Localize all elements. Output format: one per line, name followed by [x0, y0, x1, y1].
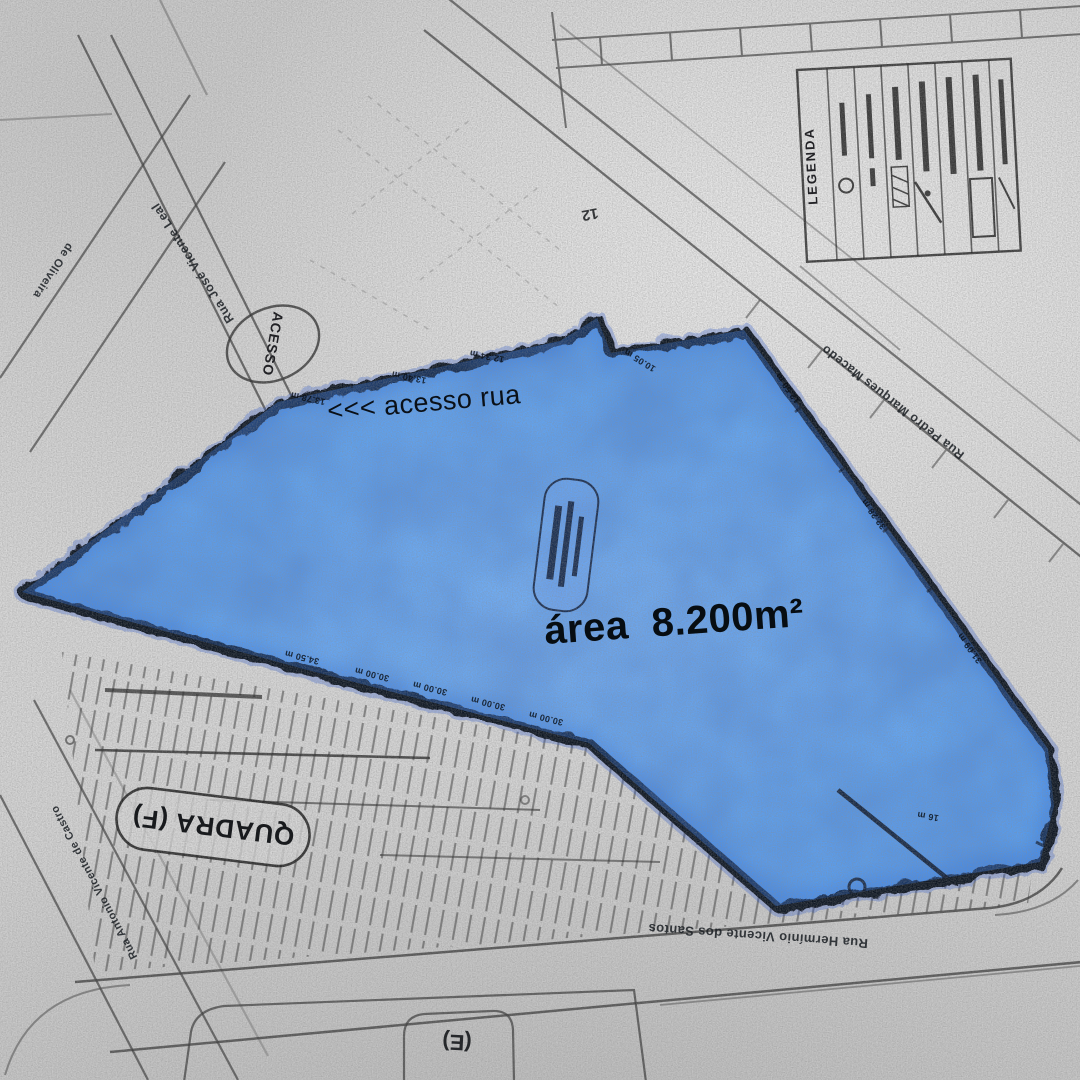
lot-number-label: 12 — [580, 205, 599, 223]
street-herminio-label: Rua Hermínio Vicente dos Santos — [648, 922, 869, 950]
measurement-label: 31.09 m — [956, 631, 984, 665]
measurement-label: 12.34 m — [469, 348, 505, 364]
area-label: área 8.200m² — [543, 593, 805, 651]
measurement-label: 12.50 m — [774, 371, 802, 405]
acesso-stamp-label: ACESSO — [260, 311, 285, 378]
measurement-label: 32.28 m — [860, 497, 888, 531]
quadra-e-label: (E) — [442, 1030, 472, 1054]
measurement-label: 30.00 m — [528, 709, 564, 726]
measurement-label: 10.05 m — [623, 347, 658, 373]
quadra-f-label: QUADRA (F) — [130, 804, 296, 850]
measurement-label: 34.50 m — [284, 648, 320, 665]
measurement-label: 13.78 m — [290, 390, 326, 406]
street-de-oliveira-label: de Oliveira — [30, 240, 74, 299]
measurement-label: 13.40 m — [391, 369, 427, 385]
street-antonio-label: Rua Antonio Vicente de Castro — [50, 803, 141, 960]
measurement-label: 16 m — [917, 810, 940, 823]
measurement-label: 30.00 m — [412, 679, 448, 696]
legend-title: LEGENDA — [802, 127, 819, 205]
measurement-label: 30.00 m — [354, 665, 390, 682]
measurement-label: 30.00 m — [470, 694, 506, 711]
access-note-label: <<< acesso rua — [326, 381, 522, 425]
street-pedro-marques-label: Rua Pedro Marques Macedo — [819, 343, 966, 462]
scanned-site-plan: <<< acesso rua área 8.200m² ACESSO QUADR… — [0, 0, 1080, 1080]
map-labels: <<< acesso rua área 8.200m² ACESSO QUADR… — [0, 0, 1080, 1080]
street-jose-vicente-leal-label: Rua José Vicente Leal — [150, 201, 237, 325]
